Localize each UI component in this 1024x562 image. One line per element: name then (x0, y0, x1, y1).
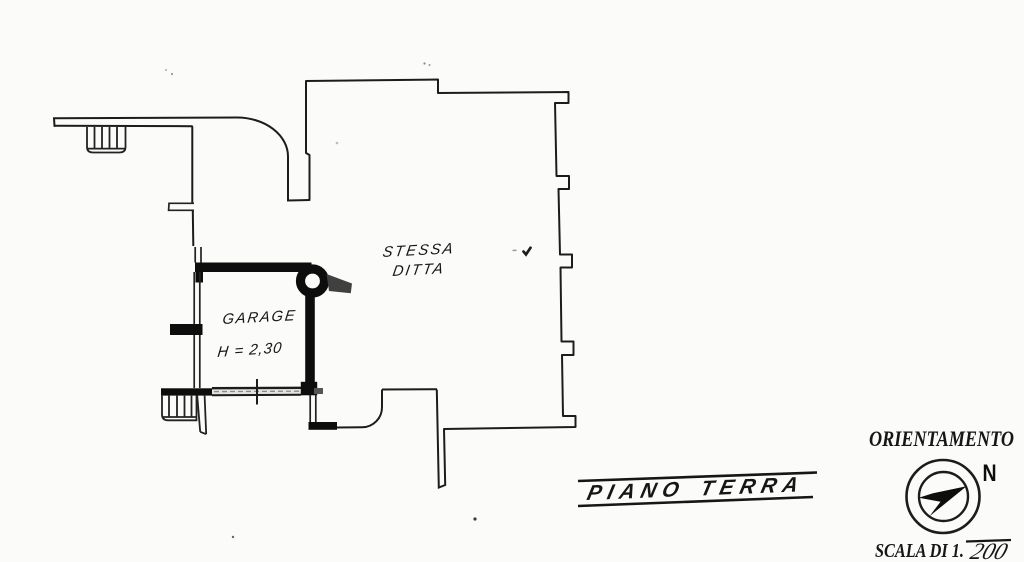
svg-text:200: 200 (967, 540, 1010, 562)
svg-text:SCALA DI 1.: SCALA DI 1. (875, 541, 964, 562)
svg-text:DITTA: DITTA (391, 260, 446, 280)
svg-text:N: N (983, 459, 997, 486)
svg-text:ORIENTAMENTO: ORIENTAMENTO (869, 426, 1014, 451)
